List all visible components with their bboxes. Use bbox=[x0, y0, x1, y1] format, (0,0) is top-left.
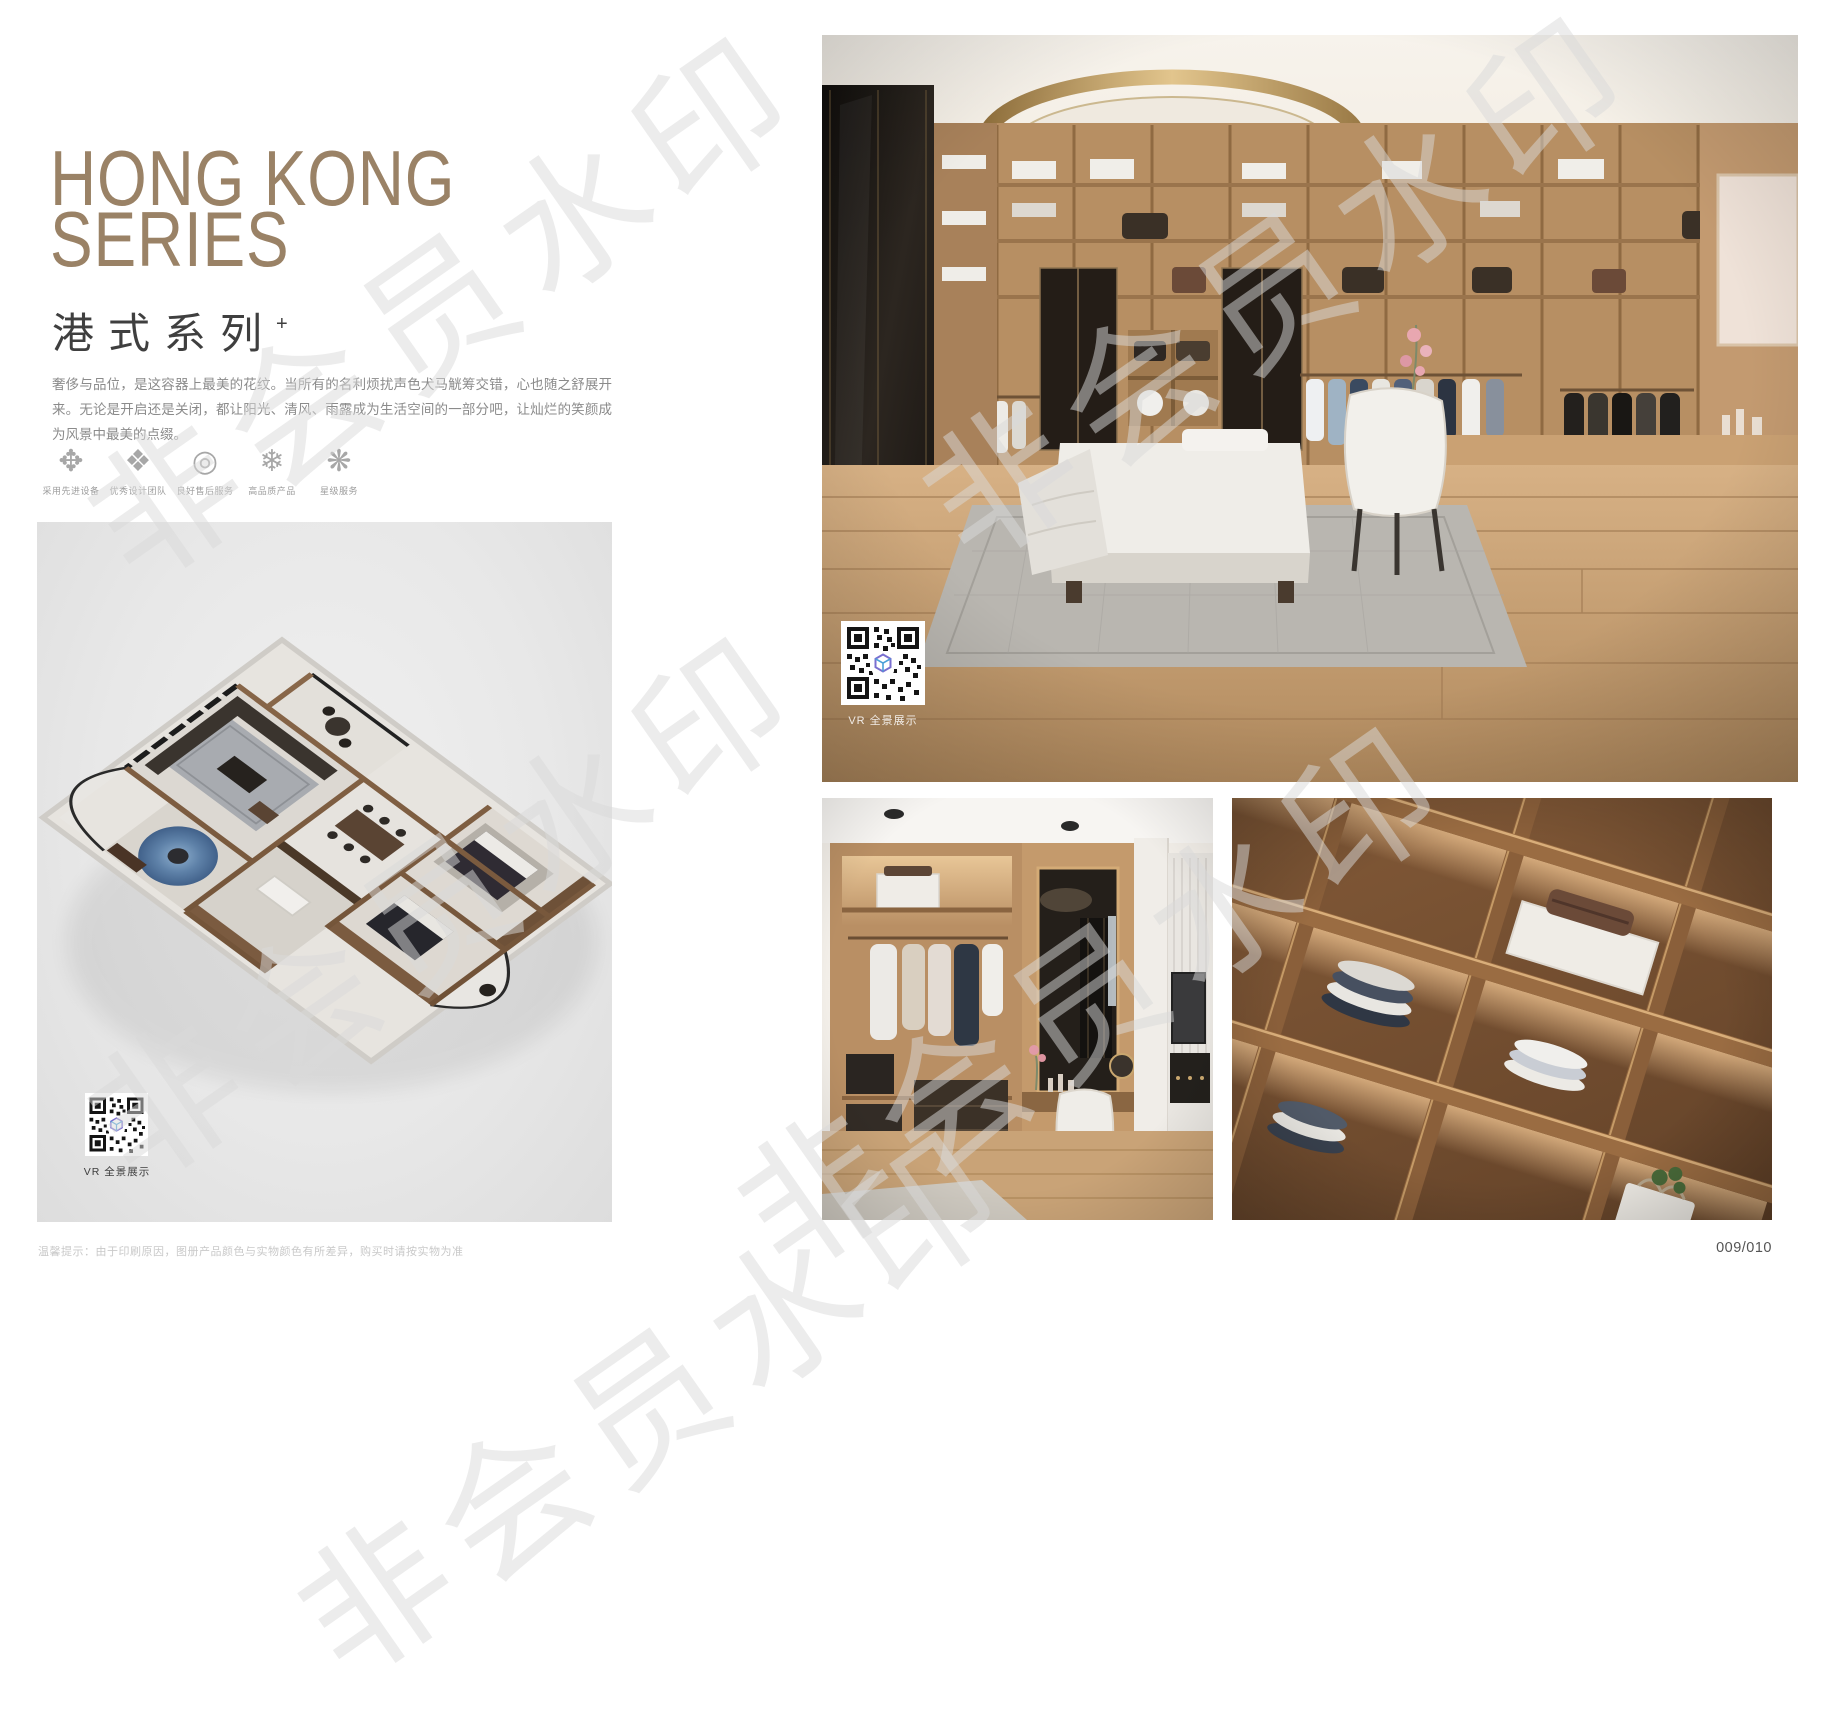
feature-item: ◎ 良好售后服务 bbox=[174, 444, 236, 497]
snowflake-icon: ❄ bbox=[259, 444, 284, 480]
feature-item: ❋ 星级服务 bbox=[308, 444, 370, 497]
feature-label: 星级服务 bbox=[320, 484, 358, 497]
feature-label: 采用先进设备 bbox=[42, 484, 99, 497]
pinwheel-icon: ✥ bbox=[58, 444, 83, 480]
diamond-lattice-icon: ❖ bbox=[125, 444, 152, 480]
star-ornament-icon: ❋ bbox=[326, 444, 351, 480]
ring-swirl-icon: ◎ bbox=[192, 444, 218, 480]
feature-label: 优秀设计团队 bbox=[109, 484, 166, 497]
feature-item: ❖ 优秀设计团队 bbox=[107, 444, 169, 497]
qr-code bbox=[85, 1093, 148, 1156]
feature-label: 高品质产品 bbox=[248, 484, 296, 497]
page-number: 009/010 bbox=[1632, 1240, 1772, 1256]
shelf-closeup-photo bbox=[1232, 798, 1772, 1220]
page-title: HONG KONG SERIES bbox=[50, 148, 509, 270]
vr-panorama-label: VR 全景展示 bbox=[57, 1164, 177, 1179]
walkin-closet-photo bbox=[822, 35, 1798, 782]
vr-panorama-label: VR 全景展示 bbox=[830, 712, 936, 728]
feature-item: ✥ 采用先进设备 bbox=[40, 444, 102, 497]
feature-item: ❄ 高品质产品 bbox=[241, 444, 303, 497]
dressing-area-photo bbox=[822, 798, 1213, 1220]
qr-code bbox=[841, 621, 925, 710]
page-subtitle: 港式系列+ bbox=[52, 300, 288, 361]
plus-mark: + bbox=[276, 313, 288, 335]
intro-paragraph: 奢侈与品位，是这容器上最美的花纹。当所有的名利烦扰声色犬马觥筹交错，心也随之舒展… bbox=[52, 372, 612, 447]
feature-list: ✥ 采用先进设备 ❖ 优秀设计团队 ◎ 良好售后服务 ❄ 高品质产品 ❋ 星级服… bbox=[40, 444, 370, 497]
feature-label: 良好售后服务 bbox=[176, 484, 233, 497]
floorplan-image: VR 全景展示 bbox=[37, 522, 612, 1222]
print-disclaimer: 温馨提示：由于印刷原因，图册产品颜色与实物颜色有所差异，购买时请按实物为准 bbox=[38, 1243, 464, 1259]
